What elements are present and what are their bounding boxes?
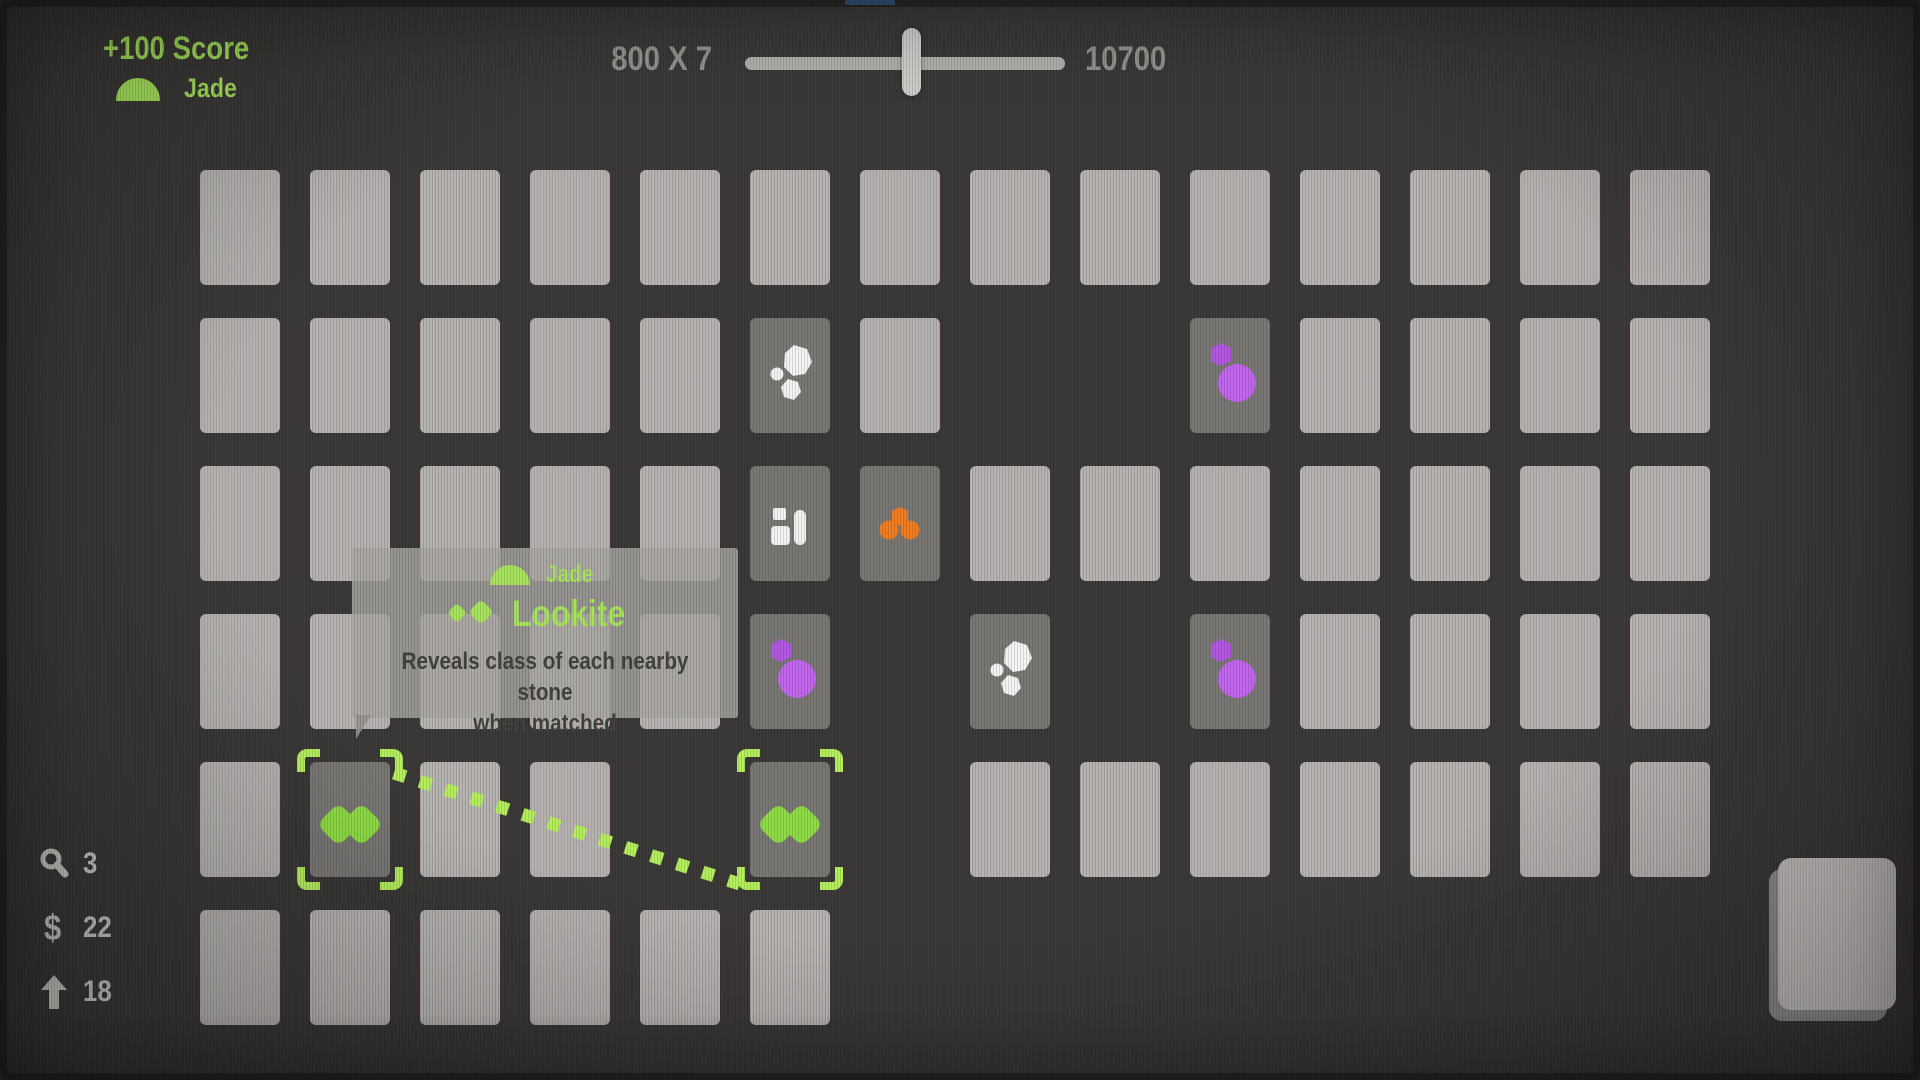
card-white-stones[interactable] <box>750 318 830 433</box>
purple-stones-gem <box>1190 614 1270 729</box>
combo-total-score: 10700 <box>1085 40 1166 79</box>
card-face-down[interactable] <box>1410 170 1490 285</box>
reveal-counter: 3 <box>38 843 116 884</box>
magnifier-icon <box>38 847 70 881</box>
jade-diamonds-gem <box>750 762 830 877</box>
white-stones-gem <box>970 614 1050 729</box>
card-face-down[interactable] <box>530 170 610 285</box>
card-face-down[interactable] <box>1520 170 1600 285</box>
card-face-down[interactable] <box>750 170 830 285</box>
card-face-down[interactable] <box>200 318 280 433</box>
card-jade-selected[interactable] <box>310 762 390 877</box>
upgrade-arrow-icon <box>38 973 70 1011</box>
purple-stones-gem <box>750 614 830 729</box>
card-face-down[interactable] <box>1190 762 1270 877</box>
card-face-down[interactable] <box>530 318 610 433</box>
card-face-down[interactable] <box>310 170 390 285</box>
tooltip-stone-name: Lookite <box>512 593 625 635</box>
card-face-down[interactable] <box>200 170 280 285</box>
money-count: 22 <box>83 911 112 945</box>
combo-slider-handle[interactable] <box>902 28 921 96</box>
card-face-down[interactable] <box>640 318 720 433</box>
card-face-down[interactable] <box>970 762 1050 877</box>
jade-class-icon <box>490 565 530 585</box>
card-face-down[interactable] <box>420 318 500 433</box>
card-face-down[interactable] <box>1300 170 1380 285</box>
stone-tooltip: Jade Lookite Reveals class of each nearb… <box>352 548 738 718</box>
reveal-count: 3 <box>83 847 97 881</box>
card-face-down[interactable] <box>200 910 280 1025</box>
game-screen: +100 Score Jade 800 X 7 10700 <box>0 0 1920 1080</box>
card-face-down[interactable] <box>1190 170 1270 285</box>
tooltip-description-line2: when matched <box>379 708 711 739</box>
card-face-down[interactable] <box>1300 614 1380 729</box>
card-grid <box>0 0 1920 1080</box>
card-face-down[interactable] <box>1300 762 1380 877</box>
card-face-down[interactable] <box>530 910 610 1025</box>
card-face-down[interactable] <box>310 318 390 433</box>
card-jade-selected[interactable] <box>750 762 830 877</box>
card-face-down[interactable] <box>970 466 1050 581</box>
upgrade-counter: 18 <box>38 971 116 1012</box>
matched-stone-line: Jade <box>103 76 273 101</box>
lookite-diamonds-icon <box>446 597 496 632</box>
card-face-down[interactable] <box>640 170 720 285</box>
draw-pile-top-card[interactable] <box>1778 858 1896 1010</box>
resource-counters: 3 $ 22 18 <box>38 843 116 1012</box>
card-face-down[interactable] <box>1410 318 1490 433</box>
card-face-down[interactable] <box>1630 170 1710 285</box>
draw-pile[interactable] <box>1769 858 1896 1021</box>
card-face-down[interactable] <box>640 910 720 1025</box>
purple-stones-gem <box>1190 318 1270 433</box>
card-face-down[interactable] <box>1520 614 1600 729</box>
card-face-down[interactable] <box>860 170 940 285</box>
tooltip-class-row: Jade <box>352 561 738 589</box>
card-face-down[interactable] <box>1520 466 1600 581</box>
jade-mound-icon <box>116 78 160 101</box>
card-face-down[interactable] <box>1080 466 1160 581</box>
white-stones-gem <box>750 318 830 433</box>
dollar-icon: $ <box>38 910 70 946</box>
card-face-down[interactable] <box>860 318 940 433</box>
white-squares-gem <box>750 466 830 581</box>
card-orange-dots[interactable] <box>860 466 940 581</box>
score-gain-text: +100 Score <box>103 30 249 67</box>
tooltip-tail <box>356 715 371 739</box>
card-face-down[interactable] <box>1190 466 1270 581</box>
matched-stone-name: Jade <box>184 76 237 101</box>
tooltip-name-row: Lookite <box>352 591 738 637</box>
card-face-down[interactable] <box>420 762 500 877</box>
card-face-down[interactable] <box>1520 762 1600 877</box>
card-face-down[interactable] <box>970 170 1050 285</box>
card-face-down[interactable] <box>1410 614 1490 729</box>
card-face-down[interactable] <box>1300 318 1380 433</box>
money-counter: $ 22 <box>38 907 116 948</box>
card-face-down[interactable] <box>750 910 830 1025</box>
jade-diamonds-gem <box>310 762 390 877</box>
combo-slider[interactable] <box>745 26 1065 98</box>
card-face-down[interactable] <box>1630 614 1710 729</box>
orange-dots-gem <box>860 466 940 581</box>
card-face-down[interactable] <box>1520 318 1600 433</box>
card-face-down[interactable] <box>1410 466 1490 581</box>
card-purple-stones[interactable] <box>750 614 830 729</box>
card-purple-stones[interactable] <box>1190 614 1270 729</box>
card-face-down[interactable] <box>1630 762 1710 877</box>
card-face-down[interactable] <box>530 762 610 877</box>
tooltip-description-line1: Reveals class of each nearby stone <box>379 646 711 708</box>
card-face-down[interactable] <box>1410 762 1490 877</box>
upgrade-count: 18 <box>83 975 112 1009</box>
card-face-down[interactable] <box>1300 466 1380 581</box>
tooltip-stone-class: Jade <box>546 561 593 589</box>
card-face-down[interactable] <box>420 910 500 1025</box>
card-face-down[interactable] <box>200 466 280 581</box>
card-face-down[interactable] <box>310 910 390 1025</box>
card-face-down[interactable] <box>200 614 280 729</box>
card-white-squares[interactable] <box>750 466 830 581</box>
card-white-stones[interactable] <box>970 614 1050 729</box>
top-progress-tick <box>845 0 895 5</box>
card-face-down[interactable] <box>1080 762 1160 877</box>
combo-equation: 800 X 7 <box>512 40 712 79</box>
score-popup: +100 Score Jade <box>103 30 273 101</box>
card-face-down[interactable] <box>1630 466 1710 581</box>
card-face-down[interactable] <box>200 762 280 877</box>
card-purple-stones[interactable] <box>1190 318 1270 433</box>
card-face-down[interactable] <box>1080 170 1160 285</box>
card-face-down[interactable] <box>420 170 500 285</box>
card-face-down[interactable] <box>1630 318 1710 433</box>
